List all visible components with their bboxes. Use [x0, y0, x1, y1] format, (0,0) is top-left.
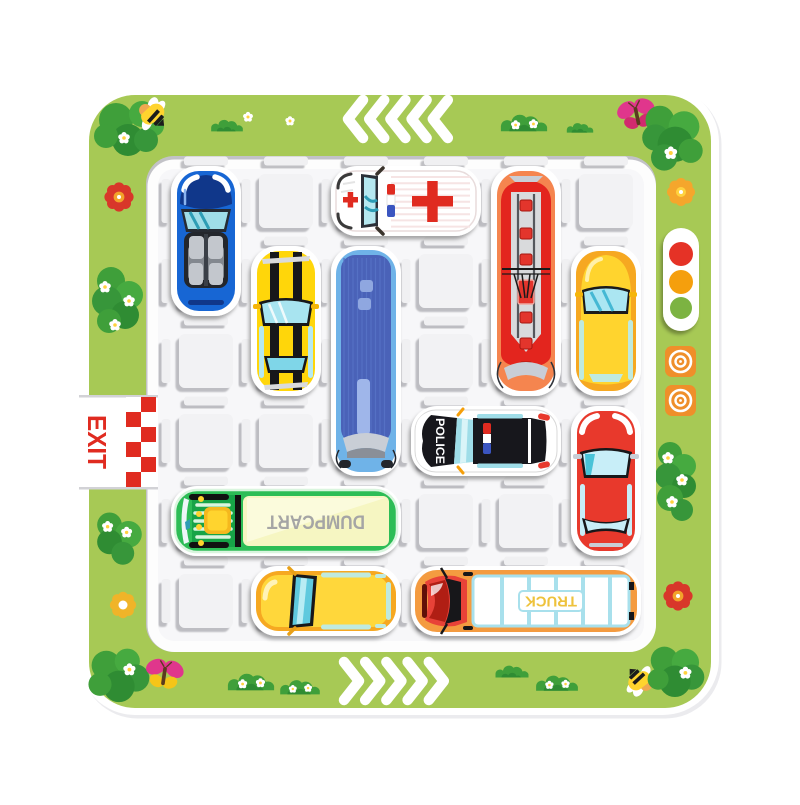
- svg-text:EXIT: EXIT: [82, 415, 112, 469]
- svg-text:POLICE: POLICE: [433, 418, 445, 464]
- svg-text:TRUCK: TRUCK: [525, 593, 577, 610]
- svg-text:DUMPCART: DUMPCART: [267, 511, 365, 532]
